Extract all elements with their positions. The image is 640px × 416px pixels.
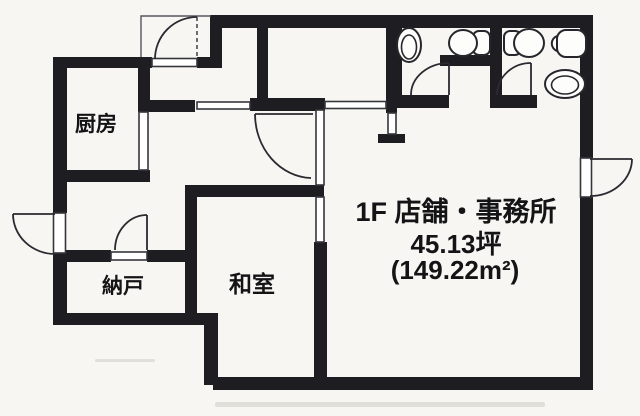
wall-segment [580, 197, 593, 390]
wall-segment [390, 95, 449, 108]
wall-segment [490, 28, 502, 106]
wall-segment [53, 57, 152, 68]
wall-segment [147, 250, 187, 262]
openings [54, 59, 592, 261]
wall-segment [257, 28, 268, 104]
floor-plan-drawing: 厨房 納戸 和室 1F 店舗・事務所 45.13坪 (149.22m²) [0, 0, 640, 416]
opening [581, 158, 592, 197]
wall-segment [210, 15, 593, 28]
corner-basin [552, 30, 586, 57]
wash-basin-2 [545, 70, 585, 98]
main-room-area-sqm: (149.22m²) [391, 255, 520, 285]
floor-plan: 厨房 納戸 和室 1F 店舗・事務所 45.13坪 (149.22m²) [0, 0, 640, 416]
door-arc [411, 63, 449, 95]
wall-segment [210, 15, 222, 68]
right-exterior-door [590, 159, 632, 196]
door-arc [497, 63, 531, 95]
toilet-1 [449, 30, 490, 56]
main-room-title: 1F 店舗・事務所 [355, 197, 556, 227]
entrance-door [155, 17, 197, 59]
opening [152, 59, 197, 67]
japanese-room-label: 和室 [229, 271, 275, 297]
wall-segment [53, 57, 67, 213]
door-arc [13, 214, 55, 254]
wall-segment [490, 95, 537, 108]
wall-segment [378, 134, 405, 143]
opening [54, 213, 66, 253]
wall-segment [138, 100, 195, 112]
toilet-2-door [497, 63, 531, 95]
door-arc [590, 159, 632, 196]
scan-smudge [95, 359, 155, 362]
wall-segment [314, 242, 327, 390]
toilet-1-door [411, 63, 449, 95]
opening [316, 197, 324, 242]
wash-basin-1 [397, 28, 421, 62]
opening [316, 110, 324, 185]
left-exterior-door [13, 214, 55, 254]
opening [388, 113, 396, 134]
opening [197, 102, 250, 109]
wall-segment [67, 170, 150, 182]
wall-segment [185, 185, 324, 197]
opening [325, 102, 386, 109]
storage-label: 納戸 [102, 274, 144, 298]
door-arc [115, 215, 147, 250]
door-arc [255, 114, 311, 178]
kitchen-label: 厨房 [75, 112, 117, 136]
toilet-2 [504, 29, 544, 57]
wall-segment [213, 377, 593, 390]
hall-main-door [255, 114, 313, 178]
storage-door [115, 215, 147, 250]
opening [139, 112, 148, 170]
opening [111, 252, 147, 260]
wall-segment [53, 253, 67, 325]
door-arc [155, 17, 197, 59]
scan-smudge [215, 402, 545, 407]
